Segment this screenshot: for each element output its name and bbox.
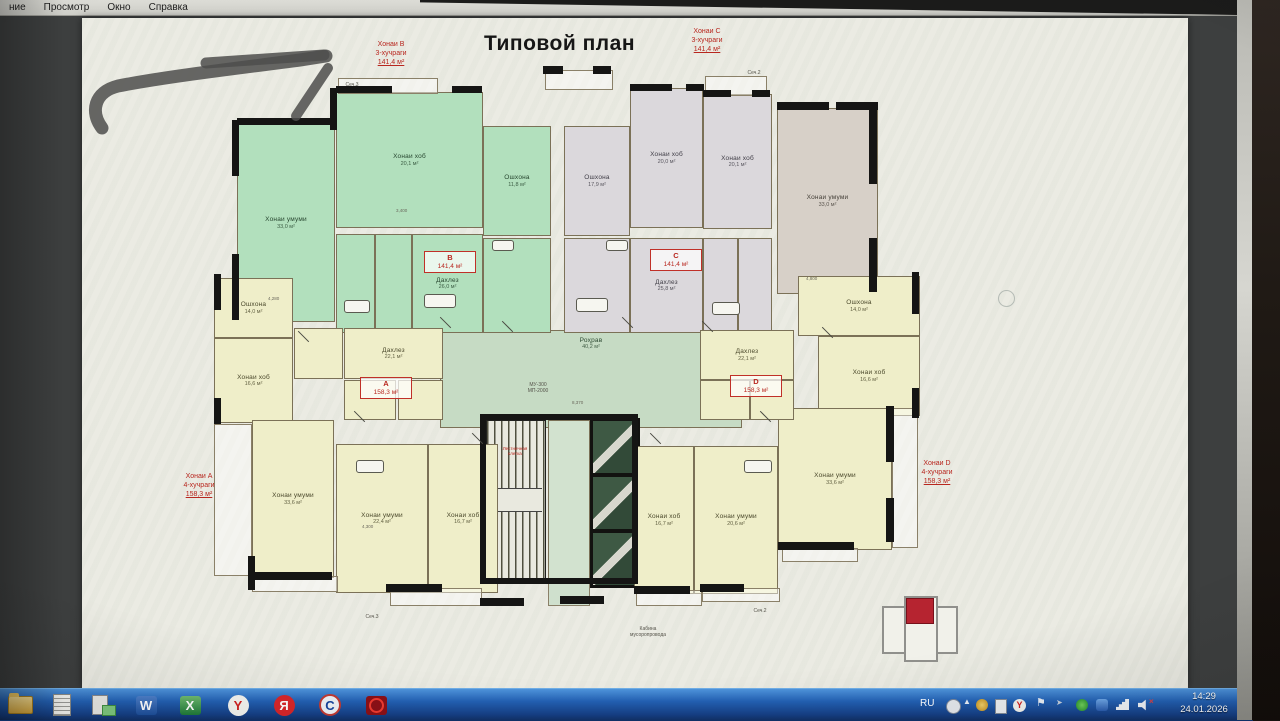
taskbar-icon-yandex-browser[interactable]: Y [224, 692, 252, 718]
taskbar-icon-c-app[interactable]: C [316, 692, 344, 718]
page-title: Типовой план [477, 32, 642, 56]
dimension: 3,400 [396, 208, 407, 213]
room-d-hall: Дахлез22,1 м² [700, 330, 794, 380]
menu-item-help[interactable]: Справка [140, 2, 197, 13]
section-mark: Сеч.2 [748, 608, 772, 614]
bathtub [576, 298, 608, 312]
dimension: 4,300 [362, 524, 373, 529]
room-a-kitchen: Ошхона14,0 м² [214, 278, 293, 338]
tray-show-hidden-icons[interactable]: ▲ [963, 697, 971, 706]
room-a-hall: Дахлез22,1 м² [344, 328, 443, 379]
room-d-bedroom-1: Хонаи хоб16,6 м² [818, 336, 920, 416]
taskbar: W X Y Я C RU ▲ Y ⚑ ➤ × 14:2924.01.2026 [0, 688, 1253, 721]
menu-item-view[interactable]: Просмотр [35, 2, 99, 13]
tray-volume-mute-mark: × [1149, 697, 1154, 706]
bathtub [356, 460, 384, 473]
stair-note: Лестничнаяклетка [490, 446, 540, 457]
room-b-wc [375, 234, 412, 333]
room-b-bath [336, 234, 375, 333]
apartment-label-c: Хонаи C 3-хучраги 141,4 м² [664, 27, 750, 54]
sink [606, 240, 628, 251]
lift-lobby [548, 420, 590, 582]
tray-network-app-icon[interactable] [1096, 699, 1108, 711]
unit-tag-d: D158,3 м² [730, 375, 782, 397]
tray-update-icon[interactable] [1076, 699, 1088, 711]
bathtub [744, 460, 772, 473]
dimension: 8,370 [572, 400, 583, 405]
taskbar-icon-acrobat[interactable] [362, 692, 390, 718]
taskbar-icon-notes-app[interactable] [90, 692, 118, 718]
marker-arrow-annotation [78, 36, 398, 156]
taskbar-icon-folder[interactable] [6, 692, 34, 718]
menu-item-window[interactable]: Окно [98, 2, 139, 13]
room-c-wc [738, 238, 772, 333]
room-a-bedroom-1: Хонаи хоб16,6 м² [214, 338, 293, 423]
bathtub [712, 302, 740, 315]
room-c-bedroom-1: Хонаи хоб20,0 м² [630, 88, 703, 228]
taskbar-icon-word[interactable]: W [132, 692, 160, 718]
room-a-bedroom-2: Хонаи хоб16,7 м² [428, 444, 498, 593]
photo-background [1252, 0, 1280, 720]
room-a-living-1: Хонаи умуми33,6 м² [252, 420, 334, 578]
balcony [214, 424, 252, 576]
section-mark: Сеч.3 [360, 614, 384, 620]
bathtub [424, 294, 456, 308]
tray-yandex-icon[interactable]: Y [1013, 699, 1026, 712]
room-c-bedroom-2: Хонаи хоб20,1 м² [703, 94, 772, 229]
tray-action-center-flag[interactable]: ⚑ [1036, 696, 1046, 709]
room-b-kitchen: Ошхона11,8 м² [483, 126, 551, 236]
tray-app-icon[interactable] [946, 699, 961, 714]
room-b-bath2 [483, 238, 551, 333]
room-c-bath2 [564, 238, 630, 333]
dimension: 4,280 [268, 296, 279, 301]
unit-tag-b: B141,4 м² [424, 251, 476, 273]
room-c-bath [703, 238, 738, 333]
taskbar-icon-document[interactable] [48, 692, 76, 718]
room-d-bedroom-2: Хонаи хоб16,7 м² [634, 446, 694, 594]
monitor-bezel [1237, 0, 1252, 720]
tray-document-icon[interactable] [995, 699, 1007, 714]
room-c-living: Хонаи умуми33,0 м² [777, 108, 878, 294]
room-d-kitchen: Ошхона14,0 м² [798, 276, 920, 336]
section-mark: Сеч.2 [742, 70, 766, 76]
dimension: 4,800 [806, 276, 817, 281]
bathtub [344, 300, 370, 313]
balcony [782, 548, 858, 562]
room-c-kitchen: Ошхона17,9 м² [564, 126, 630, 236]
apartment-label-a: Хонаи A 4-хучраги 158,3 м² [156, 472, 242, 499]
taskbar-icon-yandex[interactable]: Я [270, 692, 298, 718]
unit-tag-a: A158,3 м² [360, 377, 412, 399]
room-d-living-1: Хонаи умуми33,6 м² [778, 408, 892, 550]
sink [492, 240, 514, 251]
key-plan [876, 590, 960, 664]
key-plan-highlight [906, 598, 934, 624]
tray-pointer-icon[interactable]: ➤ [1056, 698, 1063, 707]
tray-language-indicator[interactable]: RU [920, 698, 934, 709]
apartment-label-d: Хонаи D 4-хучраги 158,3 м² [894, 459, 980, 486]
monitor-screen: ние Просмотр Окно Справка Типовой план Р… [0, 0, 1237, 720]
room-b-hall: Дахлез26,0 м² [412, 234, 483, 333]
core-tag: МУ-300МП-2000 [518, 382, 558, 394]
tray-gold-icon[interactable] [976, 699, 988, 711]
tray-signal-bars-icon[interactable] [1116, 699, 1129, 710]
unit-tag-c: C141,4 м² [650, 249, 702, 271]
taskbar-icon-excel[interactable]: X [176, 692, 204, 718]
chute-note: Кабинамусоропровода [618, 626, 678, 638]
menu-item-truncated[interactable]: ние [0, 2, 35, 13]
screen-smudge [998, 290, 1015, 307]
